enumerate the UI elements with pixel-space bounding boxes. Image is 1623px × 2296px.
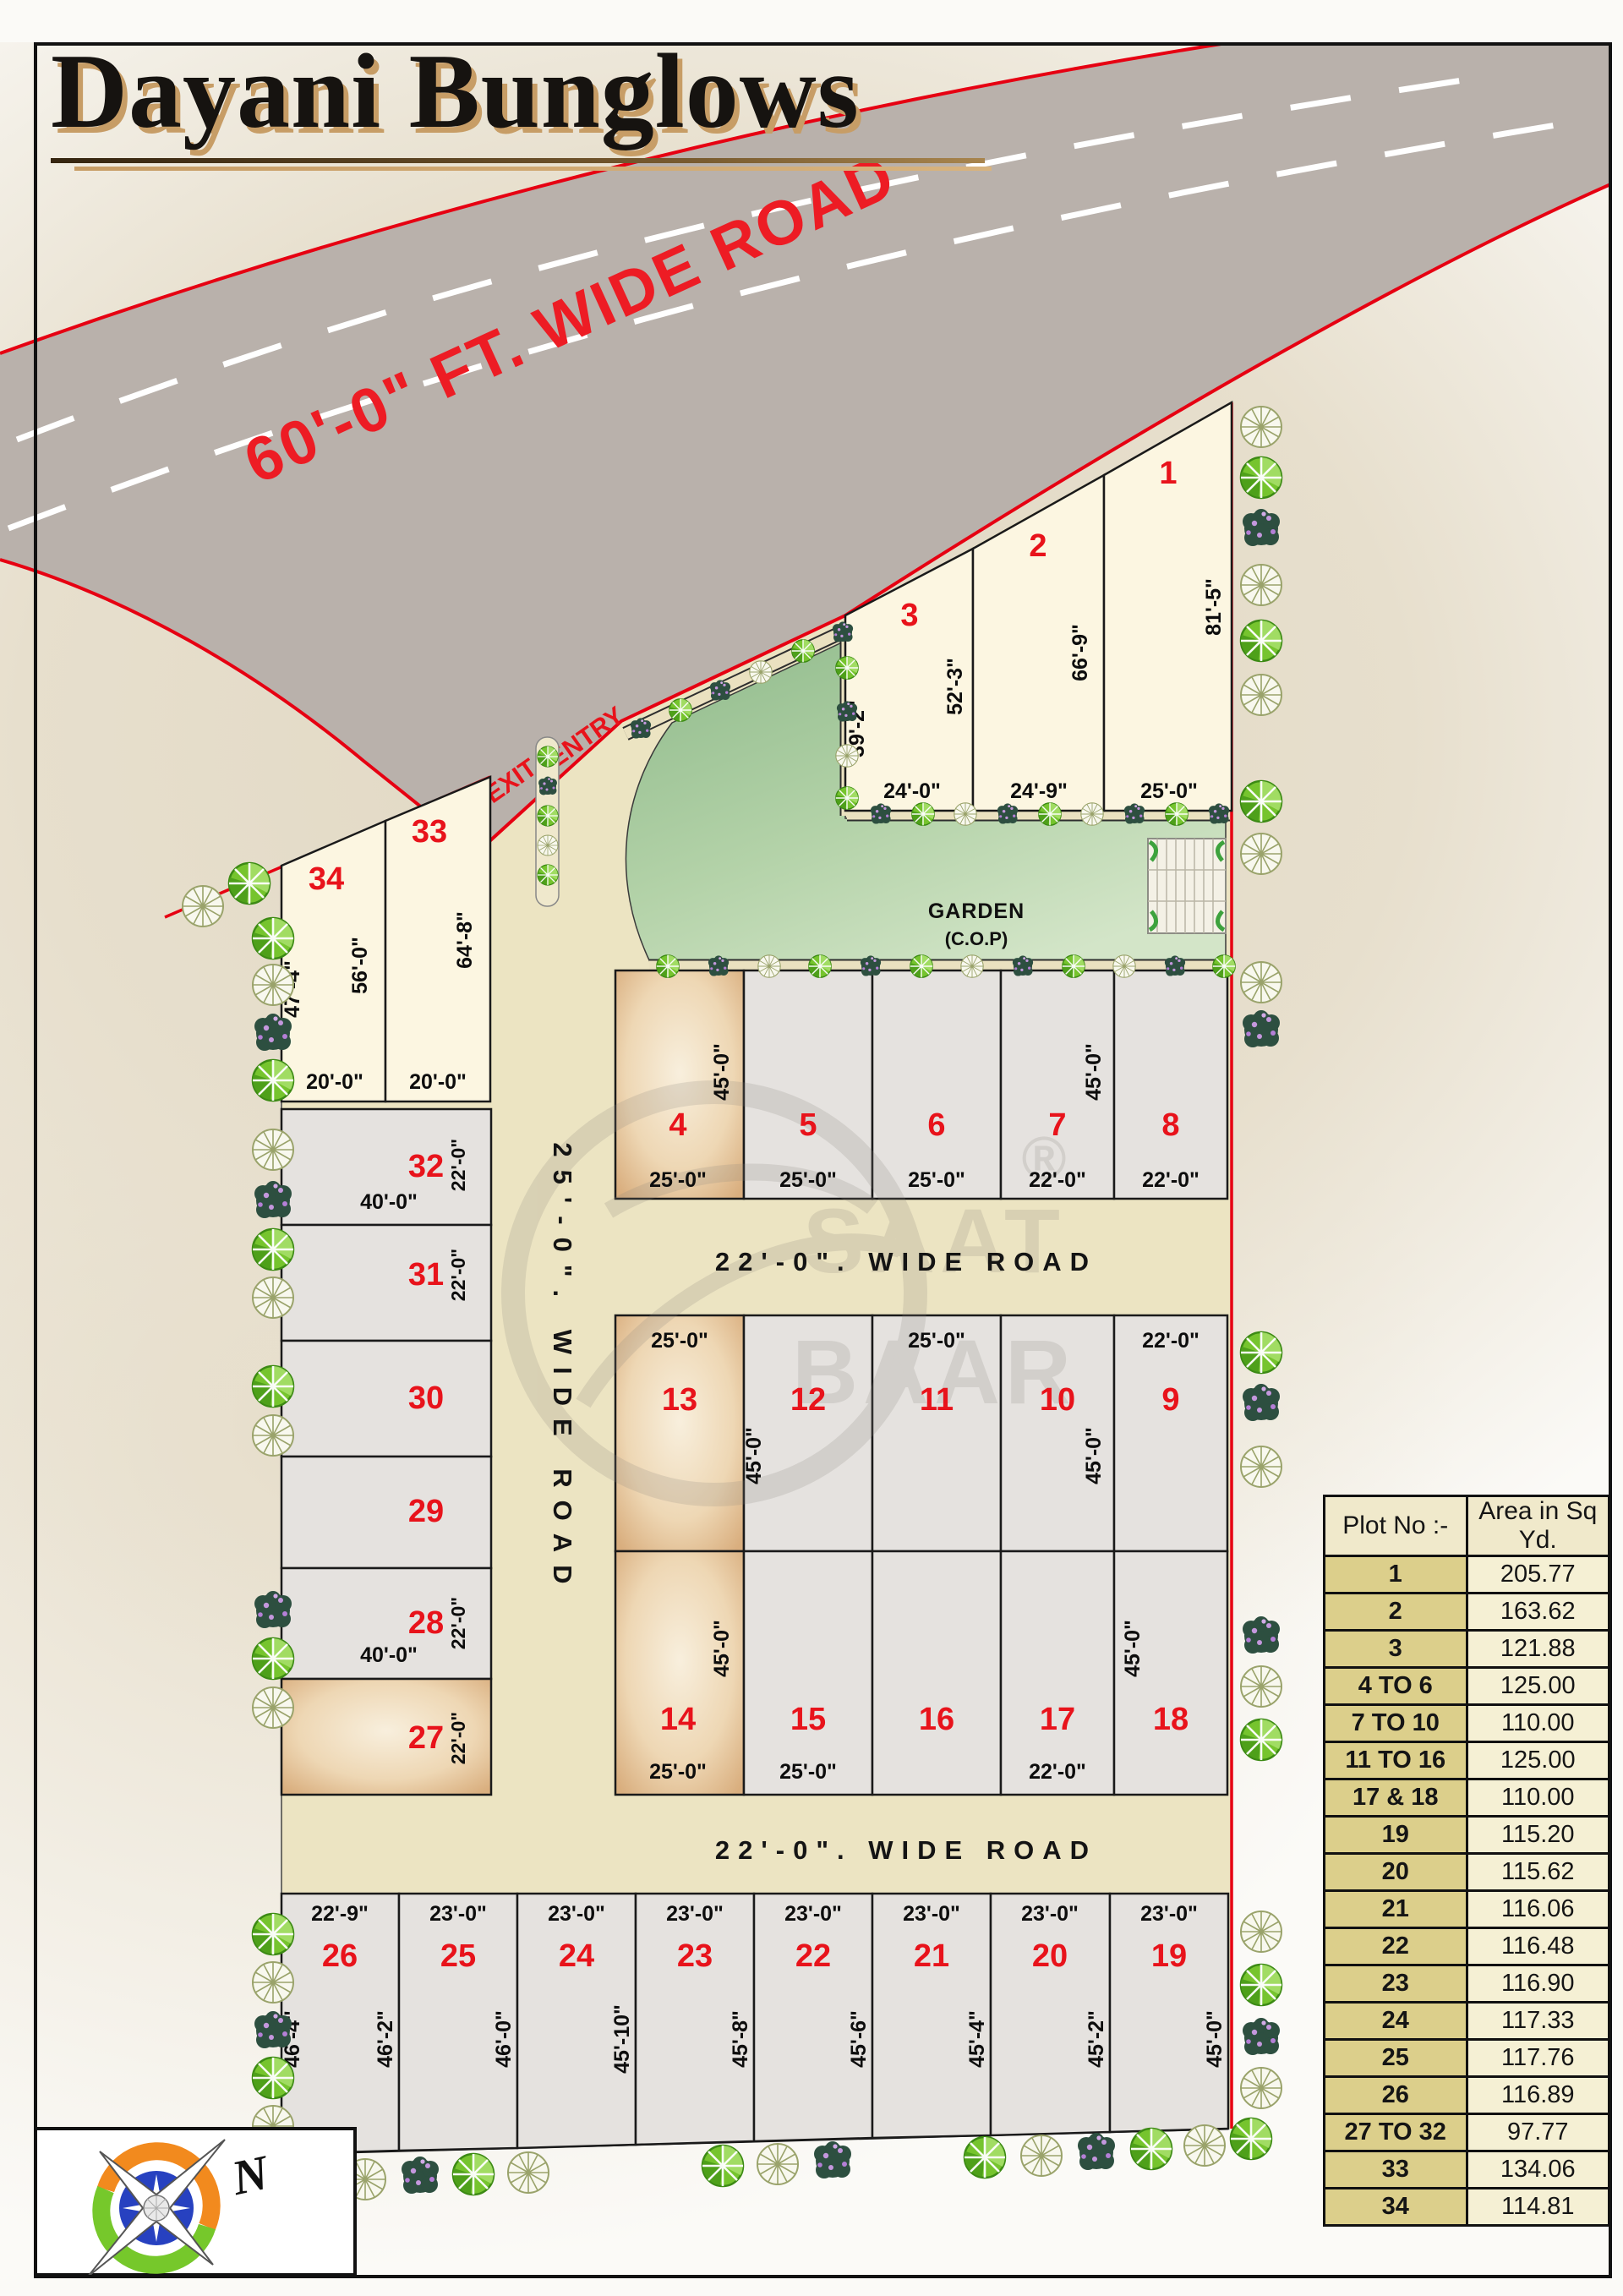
plot-13-number: 13 — [662, 1382, 697, 1418]
tree-icon — [1243, 509, 1280, 546]
tree-icon — [1241, 620, 1281, 661]
table-header-area: Area in Sq Yd. — [1467, 1496, 1609, 1556]
plot-21-side-dim: 45'-4" — [965, 2010, 989, 2068]
plot-6 — [872, 970, 1001, 1199]
bush-icon — [1165, 955, 1185, 976]
bush-icon — [861, 955, 881, 976]
tree-icon — [253, 918, 293, 959]
plot-21-number: 21 — [914, 1938, 949, 1974]
tree-icon — [254, 1014, 292, 1051]
table-row: 17 & 18110.00 — [1325, 1779, 1609, 1817]
tree-icon — [1243, 1384, 1280, 1421]
plot-2-bottom-dim: 24'-9" — [1010, 779, 1068, 803]
plot-2-number: 2 — [1029, 528, 1046, 564]
plot-no-cell: 2 — [1325, 1594, 1467, 1631]
bush-icon — [669, 699, 691, 721]
plot-33-number: 33 — [412, 814, 447, 850]
plot-15 — [744, 1551, 872, 1795]
table-row: 33134.06 — [1325, 2151, 1609, 2189]
garden-type-label: (C.O.P) — [945, 928, 1008, 949]
plot-32-bottom-dim: 40'-0" — [360, 1190, 418, 1214]
bush-icon — [657, 955, 679, 977]
plot-10-number: 10 — [1040, 1382, 1075, 1418]
tree-icon — [1131, 2129, 1172, 2169]
tree-icon — [814, 2141, 851, 2178]
plot-no-cell: 17 & 18 — [1325, 1779, 1467, 1817]
bush-icon — [836, 657, 858, 679]
table-row: 2163.62 — [1325, 1594, 1609, 1631]
tree-icon — [402, 2157, 439, 2194]
plot-26-side-dim: 46'-2" — [374, 2010, 397, 2068]
plot-no-cell: 20 — [1325, 1854, 1467, 1891]
tree-icon — [702, 2146, 743, 2186]
plot-5-number: 5 — [799, 1107, 817, 1143]
title-underline-dark — [51, 158, 985, 163]
bush-icon — [837, 701, 857, 721]
plot-20-number: 20 — [1032, 1938, 1068, 1974]
plot-17-bottom-dim: 22'-0" — [1029, 1760, 1086, 1784]
tree-icon — [1241, 565, 1281, 605]
plot-30-number: 30 — [408, 1380, 444, 1416]
plot-8 — [1114, 970, 1227, 1199]
plot-33-bottom-dim: 20'-0" — [409, 1070, 467, 1094]
bush-icon — [538, 777, 557, 795]
bush-icon — [1063, 955, 1085, 977]
plot-24-number: 24 — [559, 1938, 594, 1974]
table-row: 25117.76 — [1325, 2040, 1609, 2077]
plot-15-number: 15 — [790, 1702, 826, 1737]
bush-icon — [809, 955, 831, 977]
tree-icon — [1241, 834, 1281, 874]
bush-icon — [538, 835, 558, 856]
plot-14-side-dim: 45'-0" — [710, 1620, 734, 1677]
frame-mask-bottom — [0, 2278, 1623, 2296]
bush-icon — [538, 865, 558, 885]
table-header-plot-no: Plot No :- — [1325, 1496, 1467, 1556]
plot-27-side-dim: 22'-0" — [447, 1712, 469, 1764]
table-row: 34114.81 — [1325, 2189, 1609, 2226]
plot-23-number: 23 — [677, 1938, 713, 1974]
plot-25-number: 25 — [440, 1938, 476, 1974]
plot-12-side-dim: 45'-0" — [742, 1427, 766, 1484]
plot-4-side-dim: 45'-0" — [710, 1043, 734, 1101]
bush-icon — [538, 746, 558, 767]
plot-1-number: 1 — [1159, 456, 1177, 491]
plot-7-bottom-dim: 22'-0" — [1029, 1168, 1086, 1192]
tree-icon — [1078, 2133, 1115, 2170]
area-cell: 110.00 — [1467, 1779, 1609, 1817]
plot-19-top-dim: 23'-0" — [1140, 1902, 1198, 1926]
area-cell: 115.20 — [1467, 1817, 1609, 1854]
garden-name-label: GARDEN — [928, 899, 1025, 923]
plot-9-number: 9 — [1161, 1382, 1179, 1418]
tree-icon — [1241, 1446, 1281, 1487]
plot-1-bottom-dim: 25'-0" — [1140, 779, 1198, 803]
tree-icon — [254, 1181, 292, 1218]
plot-25-side-dim: 46'-0" — [492, 2010, 516, 2068]
plot-3-bottom-dim: 24'-0" — [883, 779, 941, 803]
tree-icon — [965, 2137, 1005, 2178]
tree-icon — [253, 1229, 293, 1270]
tree-icon — [1184, 2125, 1225, 2166]
plot-31-side-dim: 22'-0" — [447, 1249, 469, 1301]
area-table: Plot No :- Area in Sq Yd. 1205.77 2163.6… — [1323, 1495, 1610, 2227]
plot-29-number: 29 — [408, 1494, 444, 1529]
bush-icon — [631, 718, 651, 738]
tree-icon — [1241, 1666, 1281, 1707]
table-header-row: Plot No :- Area in Sq Yd. — [1325, 1496, 1609, 1556]
plot-6-number: 6 — [927, 1107, 945, 1143]
plot-28-bottom-dim: 40'-0" — [360, 1643, 418, 1667]
plot-13-top-dim: 25'-0" — [651, 1329, 708, 1353]
tree-icon — [183, 886, 223, 927]
plot-no-cell: 26 — [1325, 2077, 1467, 2114]
table-row: 3121.88 — [1325, 1631, 1609, 1668]
plot-22-number: 22 — [795, 1938, 831, 1974]
plot-24-top-dim: 23'-0" — [548, 1902, 605, 1926]
plot-no-cell: 11 TO 16 — [1325, 1742, 1467, 1779]
plot-no-cell: 33 — [1325, 2151, 1467, 2189]
bush-icon — [710, 680, 730, 700]
area-cell: 125.00 — [1467, 1668, 1609, 1705]
bush-icon — [750, 661, 772, 683]
plot-5-bottom-dim: 25'-0" — [779, 1168, 837, 1192]
bush-icon — [833, 621, 853, 642]
tree-icon — [1241, 1719, 1281, 1760]
area-cell: 97.77 — [1467, 2114, 1609, 2151]
plot-22-top-dim: 23'-0" — [784, 1902, 842, 1926]
area-cell: 121.88 — [1467, 1631, 1609, 1668]
bush-icon — [1013, 955, 1033, 976]
tree-icon — [1021, 2135, 1062, 2176]
title-block: Dayani Bunglows — [51, 34, 1031, 171]
tree-icon — [253, 1129, 293, 1170]
bush-icon — [1124, 803, 1145, 823]
bush-icon — [954, 803, 976, 825]
plot-33-side-dim: 64'-8" — [453, 911, 477, 969]
bush-icon — [758, 955, 780, 977]
tree-icon — [229, 863, 270, 904]
tree-icon — [253, 1366, 293, 1407]
plot-11-top-dim: 25'-0" — [908, 1329, 965, 1353]
area-cell: 125.00 — [1467, 1742, 1609, 1779]
area-cell: 163.62 — [1467, 1594, 1609, 1631]
plot-18-number: 18 — [1153, 1702, 1189, 1737]
plot-no-cell: 22 — [1325, 1928, 1467, 1965]
tree-icon — [254, 2011, 292, 2048]
tree-icon — [1241, 781, 1281, 822]
plot-19-side-dim: 45'-0" — [1203, 2010, 1227, 2068]
plot-no-cell: 7 TO 10 — [1325, 1705, 1467, 1742]
tree-icon — [253, 1962, 293, 2003]
table-row: 7 TO 10110.00 — [1325, 1705, 1609, 1742]
area-cell: 115.62 — [1467, 1854, 1609, 1891]
area-cell: 116.06 — [1467, 1891, 1609, 1928]
table-row: 1205.77 — [1325, 1556, 1609, 1594]
plot-26-top-dim: 22'-9" — [311, 1902, 369, 1926]
bush-icon — [997, 803, 1018, 823]
plot-34-bottom-dim: 20'-0" — [306, 1070, 363, 1094]
plot-no-cell: 27 TO 32 — [1325, 2114, 1467, 2151]
plot-3-side-dim: 52'-3" — [943, 658, 967, 715]
tree-icon — [508, 2152, 549, 2193]
bush-icon — [1209, 803, 1229, 823]
plot-no-cell: 4 TO 6 — [1325, 1668, 1467, 1705]
tree-icon — [1241, 407, 1281, 447]
plot-29 — [281, 1457, 491, 1568]
plot-21-top-dim: 23'-0" — [903, 1902, 960, 1926]
table-row: 23116.90 — [1325, 1965, 1609, 2003]
plot-14-number: 14 — [660, 1702, 696, 1737]
tree-icon — [1241, 2068, 1281, 2108]
plot-7-number: 7 — [1048, 1107, 1066, 1143]
plot-34-side-dim: 56'-0" — [348, 937, 372, 994]
plot-30 — [281, 1341, 491, 1457]
plot-4-number: 4 — [669, 1107, 686, 1143]
tree-icon — [757, 2144, 798, 2184]
plot-34-number: 34 — [309, 861, 344, 897]
plot-17-number: 17 — [1040, 1702, 1075, 1737]
plot-22-side-dim: 45'-6" — [847, 2010, 871, 2068]
tree-icon — [1231, 2118, 1271, 2159]
tree-icon — [1243, 1616, 1280, 1654]
tree-icon — [1241, 1332, 1281, 1373]
plot-24-side-dim: 45'-10" — [610, 2004, 634, 2074]
tree-icon — [253, 1277, 293, 1318]
bush-icon — [910, 955, 932, 977]
plot-4-bottom-dim: 25'-0" — [649, 1168, 707, 1192]
plot-14-bottom-dim: 25'-0" — [649, 1760, 707, 1784]
table-row: 19115.20 — [1325, 1817, 1609, 1854]
tree-icon — [253, 965, 293, 1005]
plot-no-cell: 21 — [1325, 1891, 1467, 1928]
tree-icon — [1241, 1965, 1281, 2005]
plot-8-bottom-dim: 22'-0" — [1142, 1168, 1199, 1192]
area-cell: 116.89 — [1467, 2077, 1609, 2114]
bush-icon — [1213, 955, 1235, 977]
tree-icon — [1241, 457, 1281, 498]
plot-no-cell: 24 — [1325, 2003, 1467, 2040]
plot-6-bottom-dim: 25'-0" — [908, 1168, 965, 1192]
table-row: 27 TO 3297.77 — [1325, 2114, 1609, 2151]
table-row: 11 TO 16125.00 — [1325, 1742, 1609, 1779]
plot-8-number: 8 — [1161, 1107, 1179, 1143]
plot-no-cell: 1 — [1325, 1556, 1467, 1594]
bush-icon — [538, 806, 558, 826]
bush-icon — [836, 787, 858, 809]
tree-icon — [254, 1591, 292, 1628]
tree-icon — [453, 2154, 494, 2195]
bush-icon — [912, 803, 934, 825]
plot-18-side-dim: 45'-0" — [1121, 1620, 1145, 1677]
plot-12-number: 12 — [790, 1382, 826, 1418]
plot-20-side-dim: 45'-2" — [1085, 2010, 1108, 2068]
pergola-icon — [1148, 839, 1226, 933]
plot-15-bottom-dim: 25'-0" — [779, 1760, 837, 1784]
tree-icon — [1241, 962, 1281, 1003]
plot-27-number: 27 — [408, 1720, 444, 1756]
bush-icon — [1081, 803, 1103, 825]
bush-icon — [1166, 803, 1188, 825]
tree-icon — [1241, 1911, 1281, 1952]
table-row: 4 TO 6125.00 — [1325, 1668, 1609, 1705]
plot-no-cell: 19 — [1325, 1817, 1467, 1854]
area-cell: 117.76 — [1467, 2040, 1609, 2077]
table-row: 26116.89 — [1325, 2077, 1609, 2114]
plot-1-side-dim: 81'-5" — [1202, 578, 1226, 636]
cross-road-1-label: 22'-0". WIDE ROAD — [715, 1247, 1097, 1276]
tree-icon — [1241, 675, 1281, 715]
table-row: 22116.48 — [1325, 1928, 1609, 1965]
plot-23-side-dim: 45'-8" — [729, 2010, 752, 2068]
plot-no-cell: 25 — [1325, 2040, 1467, 2077]
plot-28-side-dim: 22'-0" — [447, 1597, 469, 1649]
area-cell: 116.90 — [1467, 1965, 1609, 2003]
plot-no-cell: 23 — [1325, 1965, 1467, 2003]
tree-icon — [1243, 2018, 1280, 2055]
table-row: 21116.06 — [1325, 1891, 1609, 1928]
plot-31-number: 31 — [408, 1257, 444, 1293]
table-row: 20115.62 — [1325, 1854, 1609, 1891]
plot-11-number: 11 — [920, 1382, 954, 1418]
plot-no-cell: 34 — [1325, 2189, 1467, 2226]
plot-7-side-dim: 45'-0" — [1082, 1043, 1106, 1101]
bush-icon — [708, 955, 729, 976]
area-cell: 117.33 — [1467, 2003, 1609, 2040]
plot-26-number: 26 — [322, 1938, 358, 1974]
tree-icon — [253, 1060, 293, 1101]
bush-icon — [1113, 955, 1135, 977]
bush-icon — [961, 955, 983, 977]
frame-mask-right — [1612, 0, 1623, 2296]
table-row: 24117.33 — [1325, 2003, 1609, 2040]
plot-32-side-dim: 22'-0" — [447, 1139, 469, 1191]
area-cell: 116.48 — [1467, 1928, 1609, 1965]
plot-9-top-dim: 22'-0" — [1142, 1329, 1199, 1353]
plot-28-number: 28 — [408, 1605, 444, 1641]
title-underline-tan — [74, 167, 992, 171]
tree-icon — [253, 1687, 293, 1728]
bush-icon — [836, 745, 858, 767]
bush-icon — [1039, 803, 1061, 825]
area-cell: 110.00 — [1467, 1705, 1609, 1742]
plot-no-cell: 3 — [1325, 1631, 1467, 1668]
plot-25-top-dim: 23'-0" — [429, 1902, 487, 1926]
plot-23-top-dim: 23'-0" — [666, 1902, 724, 1926]
tree-icon — [253, 1914, 293, 1954]
tree-icon — [253, 1415, 293, 1456]
area-cell: 134.06 — [1467, 2151, 1609, 2189]
tree-icon — [253, 2058, 293, 2098]
plot-32-number: 32 — [408, 1149, 444, 1184]
plot-16 — [872, 1551, 1001, 1795]
page-title: Dayani Bunglows — [51, 34, 1031, 151]
bush-icon — [792, 640, 814, 662]
area-cell: 205.77 — [1467, 1556, 1609, 1594]
area-cell: 114.81 — [1467, 2189, 1609, 2226]
plot-16-number: 16 — [919, 1702, 954, 1737]
plot-19-number: 19 — [1151, 1938, 1187, 1974]
plot-17 — [1001, 1551, 1114, 1795]
plot-10-side-dim: 45'-0" — [1082, 1427, 1106, 1484]
compass: N — [36, 2129, 355, 2277]
tree-icon — [253, 1638, 293, 1679]
plot-20-top-dim: 23'-0" — [1021, 1902, 1079, 1926]
tree-icon — [1243, 1010, 1280, 1047]
vertical-road-label: 25'-0". WIDE ROAD — [548, 1142, 577, 1596]
plot-2-side-dim: 66'-9" — [1068, 624, 1092, 681]
plot-3-number: 3 — [900, 598, 918, 633]
bush-icon — [871, 803, 891, 823]
cross-road-2-label: 22'-0". WIDE ROAD — [715, 1835, 1097, 1865]
